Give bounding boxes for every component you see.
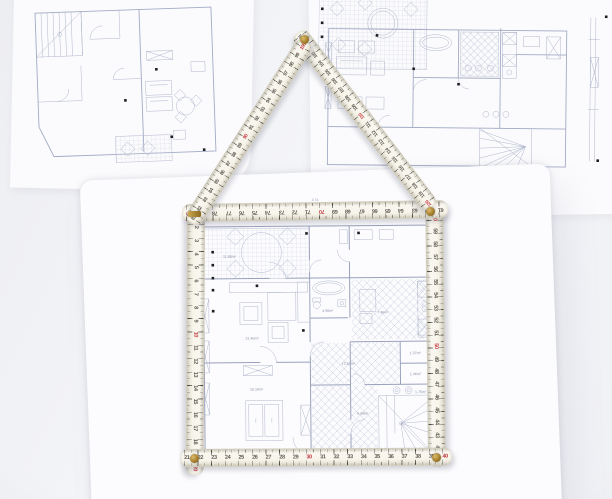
- ruler-number: 85: [213, 178, 221, 185]
- ruler-tick-strip: [186, 211, 192, 471]
- ruler-tick-strip: [184, 463, 448, 466]
- ruler-number: 117: [404, 173, 412, 181]
- ruler-number: 6: [192, 279, 198, 282]
- ruler-tick-strip: [186, 201, 444, 209]
- ruler-number: 51: [433, 330, 439, 336]
- ruler-number: 38: [415, 454, 420, 460]
- ruler-number: 15: [192, 399, 198, 404]
- ruler-number: 59: [432, 228, 438, 234]
- ruler-number: 106: [330, 77, 338, 85]
- room-label-kitchen: 7.46m²: [377, 310, 389, 314]
- ruler-number: 110: [357, 112, 365, 120]
- ruler-number: 36: [388, 454, 393, 460]
- ruler-number: 75: [252, 209, 258, 215]
- ruler-number: 99: [294, 52, 302, 59]
- ruler-number: 63: [412, 207, 418, 213]
- ruler-number: 84: [207, 187, 215, 194]
- ruler-number: 94: [265, 97, 273, 104]
- ruler-number: 34: [361, 454, 366, 460]
- brass-rivet-top-right: [426, 207, 435, 216]
- room-label-living: 21.45m²: [246, 337, 260, 341]
- brass-rivet-bottom-left: [190, 454, 199, 463]
- ruler-number: 113: [377, 138, 385, 146]
- room-label-stairs: 6.99m²: [357, 412, 369, 416]
- room-label-storage: 1.37m²: [410, 351, 422, 355]
- ruler-number: 27: [266, 455, 271, 461]
- ruler-number: 29: [293, 454, 298, 460]
- ruler-number: 112: [371, 129, 379, 137]
- ruler-number: 4: [192, 253, 198, 256]
- ruler-tick-strip: [184, 461, 448, 465]
- ruler-tick-strip: [197, 211, 203, 471]
- ruler-number: 70: [319, 208, 325, 214]
- ruler-tick-strip: [184, 460, 448, 466]
- ruler-tick-strip: [184, 449, 448, 452]
- ruler-number: 95: [271, 88, 279, 95]
- ruler-number: 97: [282, 70, 290, 77]
- ruler-number: 8: [192, 306, 198, 309]
- room-label-wc: 1.46m²: [410, 372, 422, 376]
- ruler-segment-right-wall: 4142434445464748495051525354555657585960: [425, 212, 446, 467]
- ruler-tick-strip: [427, 216, 431, 463]
- ruler-number: 45: [433, 407, 439, 413]
- ruler-number: 32: [334, 454, 339, 460]
- ruler-number: 30: [306, 454, 311, 460]
- ruler-number: 16: [191, 412, 197, 417]
- ruler-number: 103: [310, 51, 318, 59]
- ruler-number: 47: [433, 381, 439, 387]
- ruler-number: 114: [384, 147, 392, 155]
- ruler-number: 23: [211, 455, 216, 461]
- ruler-number: 43: [434, 432, 440, 438]
- ruler-number: 108: [344, 94, 352, 102]
- ruler-number: 76: [239, 209, 245, 215]
- ruler-number: 3: [192, 239, 198, 242]
- ruler-segment-bottom: 2122232425262728293031323334353637383940: [180, 448, 452, 467]
- room-label-bath: 4.96m²: [322, 309, 334, 313]
- ruler-number: 105: [324, 68, 332, 76]
- ruler-number: 90: [242, 133, 250, 140]
- brass-rivet-apex: [300, 35, 309, 44]
- ruler-number: 31: [320, 454, 325, 460]
- ruler-number: 87: [225, 160, 233, 167]
- ruler-tick-strip: [186, 211, 190, 471]
- ruler-number: 9: [192, 320, 198, 323]
- room-label-patio: 11.88m²: [223, 255, 237, 259]
- ruler-number: 24: [225, 455, 230, 461]
- ruler-number: 26: [252, 455, 257, 461]
- ruler-number: 46: [433, 394, 439, 400]
- ruler-number: 72: [292, 208, 298, 214]
- ruler-number: 10: [192, 332, 198, 337]
- ruler-number: 74: [266, 209, 272, 215]
- ruler-number: 109: [350, 103, 358, 111]
- ruler-tick-strip: [427, 216, 434, 463]
- ruler-number: 61: [439, 206, 445, 212]
- ruler-number: 53: [432, 305, 438, 311]
- ruler-number: 119: [417, 190, 425, 198]
- ruler-number: 11: [192, 345, 198, 350]
- ruler-number: 21: [184, 455, 189, 461]
- ruler-number: 28: [279, 454, 284, 460]
- ruler-number: 91: [248, 124, 256, 131]
- ruler-number: 50: [433, 343, 439, 349]
- ruler-number: 92: [253, 115, 261, 122]
- room-label-hall: 12.57m²: [342, 362, 356, 366]
- ruler-number: 55: [432, 279, 438, 285]
- ruler-number: 44: [434, 420, 440, 426]
- ruler-number: 33: [347, 454, 352, 460]
- ruler-number: 65: [385, 207, 391, 213]
- ruler-tick-strip: [200, 211, 203, 471]
- ruler-number: 17: [191, 425, 197, 430]
- ruler-number: 118: [411, 182, 419, 190]
- ruler-number: 18: [191, 439, 197, 444]
- ruler-number: 66: [372, 207, 378, 213]
- ruler-end-clip: [188, 211, 201, 217]
- ruler-number: 83: [202, 196, 210, 203]
- ruler-number: 25: [238, 455, 243, 461]
- ruler-number: 14: [192, 385, 198, 390]
- ruler-number: 89: [236, 142, 244, 149]
- ruler-number: 116: [397, 164, 405, 172]
- ruler-segment-left-wall: 1234567891011121314151617181920: [185, 207, 204, 475]
- ruler-number: 111: [364, 121, 372, 129]
- ruler-number: 49: [433, 356, 439, 362]
- ruler-number: 54: [432, 292, 438, 298]
- ruler-number: 78: [212, 210, 218, 216]
- ruler-number: 48: [433, 369, 439, 375]
- ruler-number: 71: [306, 208, 312, 214]
- ruler-number: 88: [230, 151, 238, 158]
- ruler-number: 69: [332, 208, 338, 214]
- ruler-tick-strip: [427, 216, 433, 463]
- ruler-number: 77: [226, 209, 232, 215]
- ruler-number: 115: [391, 155, 399, 163]
- ruler-number: 7: [192, 293, 198, 296]
- ruler-number: 67: [359, 207, 365, 213]
- ruler-tick-strip: [184, 449, 448, 453]
- ruler-number: 64: [399, 207, 405, 213]
- ruler-number: 56: [432, 267, 438, 273]
- ruler-number: 68: [345, 208, 351, 214]
- room-label-niche: 1.75m²: [415, 390, 427, 394]
- ruler-number: 40: [442, 454, 447, 460]
- ruler-number: 13: [192, 372, 198, 377]
- floor-plan-top-left: [19, 0, 237, 193]
- ruler-number: 2: [192, 226, 198, 229]
- ruler-number: 98: [288, 61, 296, 68]
- ruler-number: 104: [317, 59, 325, 67]
- ruler-number: 52: [433, 318, 439, 324]
- ruler-tick-strip: [186, 211, 189, 471]
- ruler-number: 93: [259, 106, 267, 113]
- ruler-tick-strip: [184, 449, 448, 455]
- ruler-number: 96: [276, 79, 284, 86]
- ruler-number: 35: [374, 454, 379, 460]
- brass-rivet-bottom-right: [432, 453, 441, 462]
- ruler-number: 107: [337, 85, 345, 93]
- ruler-number: 37: [402, 454, 407, 460]
- room-label-bedroom: 16.16m²: [250, 387, 264, 391]
- ruler-number: 5: [192, 266, 198, 269]
- ruler-number: 12: [192, 358, 198, 363]
- ruler-tick-strip: [199, 211, 203, 471]
- ruler-number: 57: [432, 254, 438, 260]
- ruler-number: 58: [432, 241, 438, 247]
- ruler-number: 73: [279, 209, 285, 215]
- ruler-number: 86: [219, 169, 227, 176]
- floor-plan-center: 3.74 4.61 1.18 1.365 7.2 1.18 7.13 2.34: [199, 189, 437, 459]
- ruler-number: 120: [424, 199, 432, 207]
- photo-stage: 3.74 4.61 1.18 1.365 7.2 1.18 7.13 2.34: [0, 0, 612, 499]
